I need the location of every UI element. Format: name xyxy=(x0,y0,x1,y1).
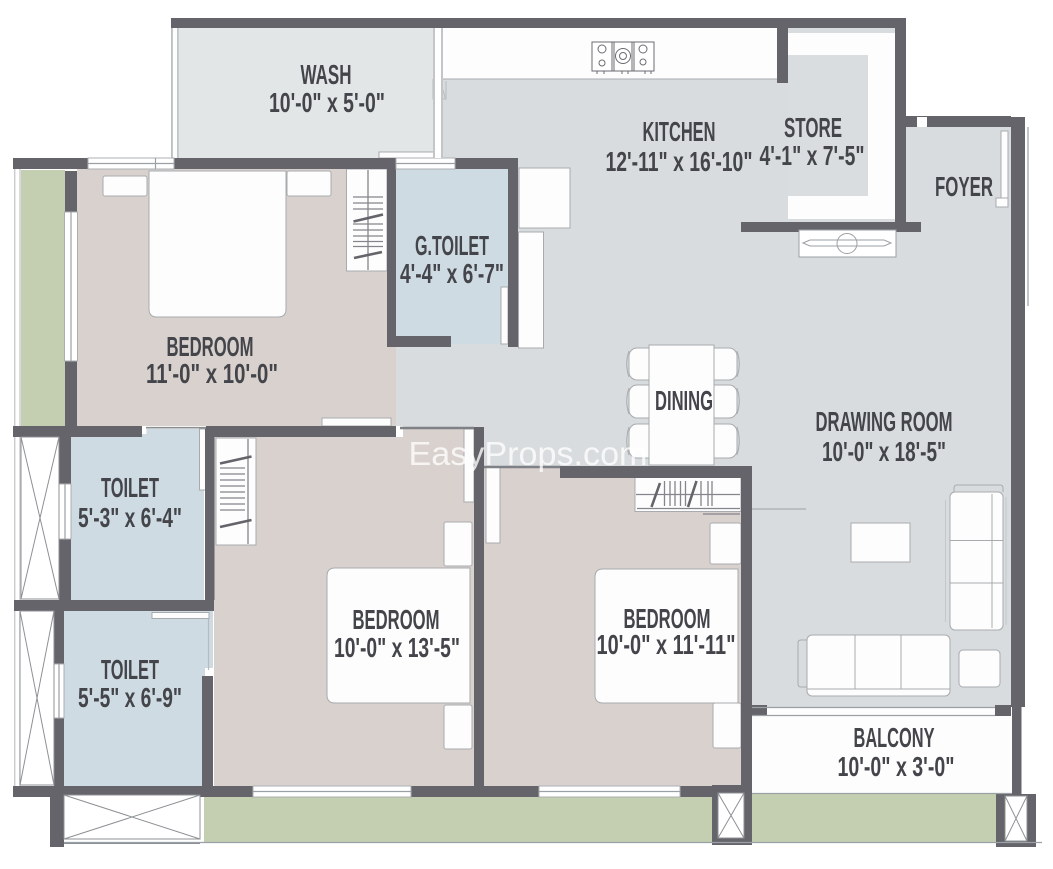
svg-text:WASH: WASH xyxy=(301,59,352,90)
svg-text:12'-11" x 16'-10": 12'-11" x 16'-10" xyxy=(606,146,753,177)
svg-text:EasyProps.com: EasyProps.com xyxy=(409,436,648,473)
svg-text:10'-0" x 5'-0": 10'-0" x 5'-0" xyxy=(269,87,385,118)
svg-text:10'-0" x 11'-11": 10'-0" x 11'-11" xyxy=(597,629,736,660)
svg-text:TOILET: TOILET xyxy=(101,654,159,685)
svg-text:5'-3" x 6'-4": 5'-3" x 6'-4" xyxy=(78,502,182,533)
svg-text:KITCHEN: KITCHEN xyxy=(643,116,716,147)
svg-text:FOYER: FOYER xyxy=(935,171,993,202)
svg-text:11'-0" x 10'-0": 11'-0" x 10'-0" xyxy=(146,358,278,389)
svg-text:DRAWING ROOM: DRAWING ROOM xyxy=(816,406,953,437)
svg-text:10'-0" x 3'-0": 10'-0" x 3'-0" xyxy=(838,751,955,782)
svg-text:BALCONY: BALCONY xyxy=(854,722,935,753)
svg-text:STORE: STORE xyxy=(784,112,842,143)
svg-text:DINING: DINING xyxy=(655,385,713,416)
svg-text:4'-1" x 7'-5": 4'-1" x 7'-5" xyxy=(760,140,865,171)
svg-text:10'-0" x 13'-5": 10'-0" x 13'-5" xyxy=(334,632,460,663)
svg-text:5'-5" x 6'-9": 5'-5" x 6'-9" xyxy=(78,682,182,713)
svg-text:TOILET: TOILET xyxy=(101,472,159,503)
svg-text:10'-0" x 18'-5": 10'-0" x 18'-5" xyxy=(822,436,946,467)
svg-text:BEDROOM: BEDROOM xyxy=(353,604,440,635)
svg-text:4'-4" x 6'-7": 4'-4" x 6'-7" xyxy=(400,258,504,289)
svg-text:G.TOILET: G.TOILET xyxy=(415,230,489,261)
